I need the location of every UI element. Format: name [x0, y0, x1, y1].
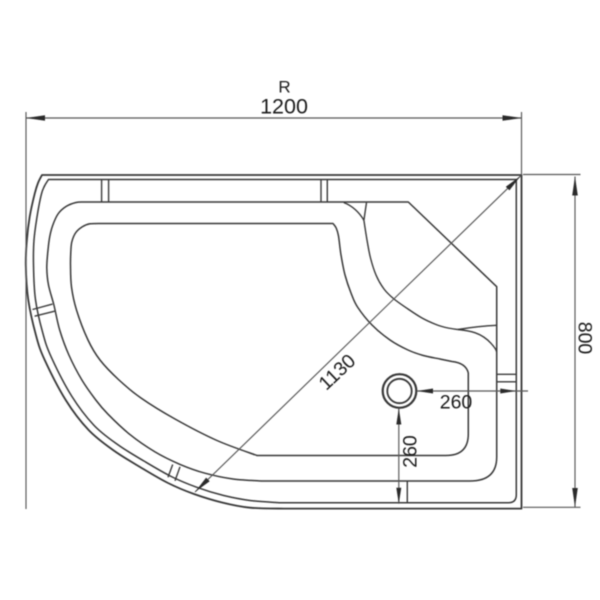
svg-text:260: 260: [400, 435, 422, 468]
svg-text:800: 800: [574, 322, 596, 355]
svg-text:260: 260: [440, 392, 473, 414]
svg-text:1200: 1200: [260, 95, 308, 119]
